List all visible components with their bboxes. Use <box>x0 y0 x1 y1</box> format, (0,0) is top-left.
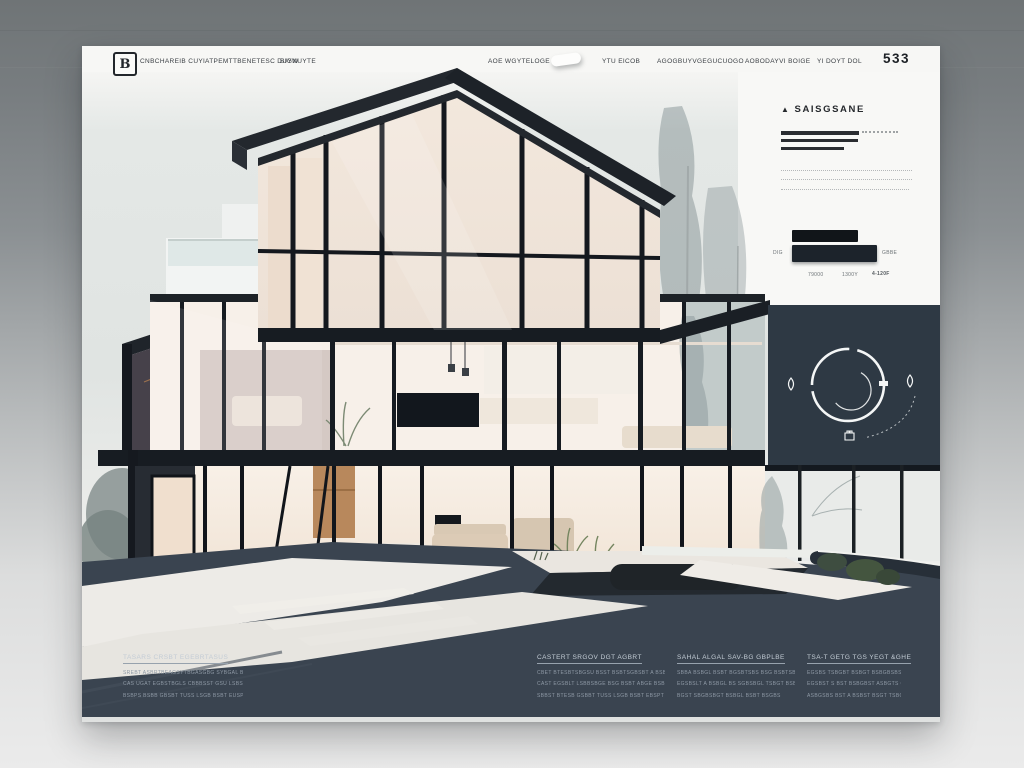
footer-column-3: SAHAL ALGAL SAV-BG GBPLBE SBBA BSBGL BSB… <box>677 646 795 699</box>
footer-line: BSBPS BSBB GBSBT TUSS LSGB BSBT EUSPS <box>123 693 243 699</box>
footer-column-4: TSA-T GETG TGS YEGT &GHE EGSBS TSBGBT BS… <box>807 646 911 699</box>
footer-line: EGSBST S BST BSBGBST ASBGTS GSB BSBGBST <box>807 681 901 687</box>
footer-heading-4[interactable]: TSA-T GETG TGS YEGT &GHE <box>807 654 911 664</box>
background-rule-top <box>0 30 1024 31</box>
triangle-icon: ▲ <box>781 105 791 114</box>
footer-line: SBBA BSBGL BSBT BGSBTSBS BSG BSBTSB BSL <box>677 670 795 676</box>
cta-bar-primary[interactable] <box>792 230 858 242</box>
text-line-thin-1 <box>781 170 912 171</box>
footer-heading-1[interactable]: TASARS CRSBT EGEBRTASUS <box>123 654 228 664</box>
footer-line: CBET BTESBTSBGSU BSST BSBTSGBSBT A BSBTS… <box>537 670 665 676</box>
nav-item-6[interactable]: AGOGBUYVGEGUCUOGO <box>657 58 744 65</box>
bar-label-left: DIG <box>773 250 783 256</box>
footer: TASARS CRSBT EGEBRTASUS SREBT ASBRTBEAGS… <box>82 646 940 722</box>
footer-line: EGSBSLT A BSBGL BS SGBSBGL TSBGT BSBS BS… <box>677 681 795 687</box>
footer-column-1: TASARS CRSBT EGEBRTASUS SREBT ASBRTBEAGS… <box>123 646 243 699</box>
footer-heading-3[interactable]: SAHAL ALGAL SAV-BG GBPLBE <box>677 654 785 664</box>
text-line-bold-3 <box>781 147 844 151</box>
text-line-bold-1 <box>781 131 859 135</box>
footer-line: SREBT ASBRTBEAGSYTBGASGBG SYBGAL BRBTBEB… <box>123 670 243 676</box>
nav-item-3[interactable]: BIGNUYTE <box>280 58 316 65</box>
footer-heading-2[interactable]: CASTERT SRGOV DGT AGBRT <box>537 654 642 664</box>
bar-label-right: GBBE <box>882 250 897 256</box>
bar-tick-3: 4-120F <box>872 271 890 277</box>
text-line-thin-3 <box>781 189 909 190</box>
text-line-thin-2 <box>781 179 912 180</box>
cursor-tooltip-blob[interactable] <box>550 52 581 67</box>
header: B CNBCHAREIB CUYI ATPEMTTBENETESC DUYW B… <box>82 46 940 90</box>
panel-heading: ▲SAISGSANE <box>781 104 865 115</box>
info-panel: ▲SAISGSANE DIG GBBE 79000 1300Y 4-120F <box>742 90 940 305</box>
footer-line: EGSBS TSBGBT BSBGT BSBGBSBSS. T ABGSBSST… <box>807 670 901 676</box>
website-mockup-card: B CNBCHAREIB CUYI ATPEMTTBENETESC DUYW B… <box>82 46 940 722</box>
nav-item-1[interactable]: CNBCHAREIB CUYI <box>140 58 205 65</box>
footer-column-2: CASTERT SRGOV DGT AGBRT CBET BTESBTSBGSU… <box>537 646 665 699</box>
logo[interactable]: B <box>113 52 137 76</box>
text-line-ext <box>862 131 898 133</box>
footer-line: CAS UGAT EGBSTBGLS CBBBSST GSU LSBSE BSS… <box>123 681 243 687</box>
nav-item-5[interactable]: YTU EICOB <box>602 58 640 65</box>
footer-line: ASBGSBS BST A BSBST BSGT TSBGST BSBGSBS <box>807 693 901 699</box>
nav-item-7[interactable]: AOBODAYVI BOIGE <box>745 58 810 65</box>
menu-number[interactable]: 533 <box>883 51 910 66</box>
footer-line: CAST EGSBLT LSBBSBGE BSG BSBT ABGE BSBTS… <box>537 681 665 687</box>
bar-tick-1: 79000 <box>808 272 823 278</box>
nav-item-8[interactable]: YI DOYT DOL <box>817 58 862 65</box>
footer-line: BGST SBGBSBGT BSBGL BSBT BSGBS <box>677 693 795 699</box>
nav-item-4[interactable]: AOE WGYTELOGE <box>488 58 550 65</box>
footer-line: SBBST BTESB GSBBT TUSS LSGB BSBT EBSPT <box>537 693 665 699</box>
text-line-bold-2 <box>781 139 858 143</box>
bar-tick-2: 1300Y <box>842 272 858 278</box>
gauge-panel <box>768 305 940 465</box>
garden-fence <box>759 465 940 561</box>
cta-bar-secondary[interactable] <box>792 245 877 262</box>
logo-glyph: B <box>120 57 131 72</box>
